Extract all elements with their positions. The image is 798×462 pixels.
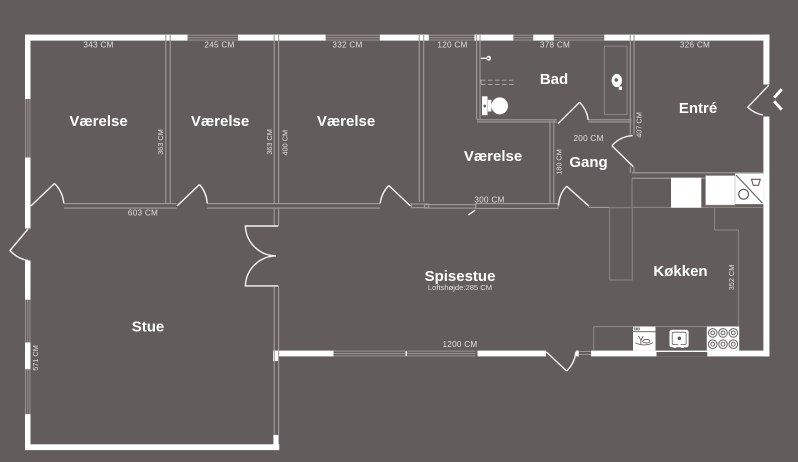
svg-text:Entré: Entré (679, 100, 717, 117)
svg-text:326 CM: 326 CM (680, 41, 710, 50)
svg-text:300 CM: 300 CM (474, 196, 504, 205)
svg-text:200 CM: 200 CM (574, 134, 604, 143)
svg-text:Gang: Gang (569, 154, 607, 171)
svg-text:Værelse: Værelse (317, 113, 375, 130)
svg-text:407 CM: 407 CM (635, 112, 644, 138)
svg-text:Bad: Bad (540, 71, 568, 88)
svg-text:Værelse: Værelse (464, 148, 522, 165)
svg-text:Værelse: Værelse (191, 113, 249, 130)
svg-text:378 CM: 378 CM (540, 41, 570, 50)
svg-text:332 CM: 332 CM (332, 41, 362, 50)
svg-text:Loftshøjde:285 CM: Loftshøjde:285 CM (428, 283, 492, 292)
svg-text:Stue: Stue (132, 319, 165, 336)
svg-text:1200 CM: 1200 CM (443, 340, 478, 349)
svg-text:363 CM: 363 CM (156, 129, 165, 155)
svg-text:400 CM: 400 CM (280, 130, 289, 156)
svg-text:363 CM: 363 CM (265, 129, 274, 155)
svg-text:180 CM: 180 CM (555, 149, 564, 175)
svg-text:245 CM: 245 CM (204, 41, 234, 50)
svg-text:343 CM: 343 CM (83, 41, 113, 50)
svg-text:Køkken: Køkken (653, 263, 707, 280)
svg-text:352 CM: 352 CM (727, 265, 736, 291)
svg-text:603 CM: 603 CM (128, 209, 158, 218)
svg-text:571 CM: 571 CM (31, 345, 40, 371)
svg-text:Værelse: Værelse (69, 113, 127, 130)
svg-text:120 CM: 120 CM (437, 41, 467, 50)
